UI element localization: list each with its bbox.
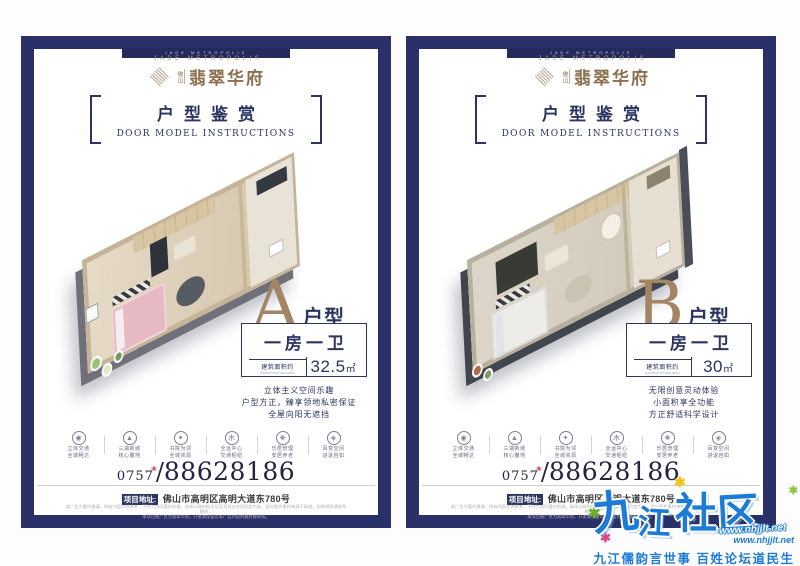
notch-text: JADE METROPOLIS (550, 50, 633, 55)
feature-traffic-icon: ◉ (457, 431, 471, 445)
round-rug (564, 270, 592, 308)
area-left: 建筑面积约 CONSTRUCTION AREA ABOUT (634, 359, 691, 375)
address-label: 项目地址: (507, 494, 544, 505)
desc-line: 户型方正，臻享领地私密保证 (224, 397, 374, 409)
disclaimer-line: 本广告为要约邀请，所有内容仅供参考，不作为合同要约依据，具体以政府批文及买卖双方… (65, 504, 347, 514)
section-title-cn: 户型鉴赏 (117, 100, 296, 125)
desc-line: 无限创意灵动体验 (609, 385, 759, 397)
watermark-char: 江 (637, 495, 672, 545)
desc-line: 小面积享全功能 (609, 397, 759, 409)
brand-block: JADE METROPOLIS 佛山 翡翠华府 (419, 56, 763, 89)
desk (545, 244, 569, 272)
feature-hub-icon: 木 (610, 431, 624, 445)
plant (472, 361, 483, 380)
feature-item: ◉立体交通全城畅达 (54, 431, 104, 459)
plant (101, 361, 112, 380)
unit-description: 无限创意灵动体验 小面积享全功能 方正舒适科学设计 (609, 385, 759, 421)
area-value: 30㎡ (691, 357, 744, 377)
section-title-cn: 户型鉴赏 (502, 100, 681, 125)
area-value: 32.5㎡ (306, 357, 359, 377)
brand-logo-diamond-icon (532, 65, 556, 89)
phone-main: 88628186 (164, 457, 295, 486)
poster-a-inner: JADE METROPOLIS JADE METROPOLIS 佛山 翡翠华府 (34, 49, 378, 515)
plant (483, 366, 493, 383)
desc-line: 立体主义空间乐趣 (224, 385, 374, 397)
area-unit: ㎡ (346, 364, 356, 375)
feature-school-icon: ✦ (559, 431, 573, 445)
feature-item: ❋乐居管理安居养老 (258, 431, 308, 459)
poster-a: JADE METROPOLIS JADE METROPOLIS 佛山 翡翠华府 (21, 36, 391, 528)
brand-row: 佛山 翡翠华府 (419, 64, 763, 89)
feature-item: ❋乐居管理安居养老 (643, 431, 693, 459)
desc-line: 全屋向阳无遮挡 (224, 409, 374, 421)
pillow (115, 308, 125, 351)
address-label: 项目地址: (122, 494, 159, 505)
brand-name-en: JADE METROPOLIS (34, 56, 378, 62)
disclaimer-line: 本项目推广名为翡翠华府，开发商保留对本广告内容的最终解释权。 (65, 515, 347, 520)
features-row: ◉立体交通全城畅达 ▲三湖新城核心腹地 ✦书院为邻全城资源 木全运中心交通枢纽 … (419, 431, 763, 459)
phone-number: 0757❀/88628186 (34, 457, 378, 486)
area-number: 32.5 (311, 357, 346, 376)
brand-city: 佛山 (175, 69, 185, 84)
washing-machine (85, 303, 98, 325)
tv-wall (495, 242, 538, 296)
watermark-char: 九 (589, 474, 642, 544)
feature-item: ✦书院为邻全城资源 (541, 431, 591, 459)
tv-cabinet (150, 236, 169, 277)
feature-item: ▲三湖新城核心腹地 (105, 431, 155, 459)
poster-b-inner: JADE METROPOLIS JADE METROPOLIS 佛山 翡翠华府 (419, 49, 763, 515)
feature-space-icon: ◈ (327, 431, 341, 445)
watermark-tagline: 九江儒韵言世事 百姓论坛道民生 (590, 548, 798, 566)
flower-icon: ❀ (536, 466, 542, 473)
feature-item: ▲三湖新城核心腹地 (490, 431, 540, 459)
desc-line: 方正舒适科学设计 (609, 409, 759, 421)
area-row: 建筑面积约 CONSTRUCTION AREA ABOUT 30㎡ (634, 357, 744, 377)
divider (37, 485, 375, 486)
area-row: 建筑面积约 CONSTRUCTION AREA ABOUT 32.5㎡ (249, 357, 359, 377)
feature-item: 木全运中心交通枢纽 (207, 431, 257, 459)
features-row: ◉立体交通全城畅达 ▲三湖新城核心腹地 ✦书院为邻全城资源 木全运中心交通枢纽 … (34, 431, 378, 459)
poster-b: JADE METROPOLIS JADE METROPOLIS 佛山 翡翠华府 (406, 36, 776, 528)
round-dining-table (599, 207, 623, 246)
dining-table (174, 235, 196, 261)
brand-block: JADE METROPOLIS 佛山 翡翠华府 (34, 56, 378, 89)
page: JADE METROPOLIS JADE METROPOLIS 佛山 翡翠华府 (0, 0, 800, 566)
notch-text: JADE METROPOLIS (165, 50, 248, 55)
unit-description: 立体主义空间乐趣 户型方正，臻享领地私密保证 全屋向阳无遮挡 (224, 385, 374, 421)
brand-name-cn: 翡翠华府 (574, 64, 650, 89)
feature-item: ◉立体交通全城畅达 (439, 431, 489, 459)
phone-prefix: 0757 (502, 469, 539, 484)
feature-space-icon: ◈ (712, 431, 726, 445)
forum-watermark: ✱ ✱ ✱ ✱ 九江社区 www.nhjjlt.net www.nhjjlt.n… (590, 480, 798, 564)
round-rug (176, 271, 206, 312)
pillow (495, 313, 505, 356)
area-box: 一房一卫 建筑面积约 CONSTRUCTION AREA ABOUT 30㎡ (626, 323, 752, 377)
area-label: 建筑面积约 (634, 362, 691, 371)
feature-item: ✦书院为邻全城资源 (156, 431, 206, 459)
brand-name-en: JADE METROPOLIS (419, 56, 763, 62)
address-value: 佛山市高明区高明大道东780号 (163, 494, 291, 504)
feature-lakes-icon: ▲ (123, 431, 137, 445)
layout-text: 一房一卫 (634, 329, 744, 354)
feature-school-icon: ✦ (174, 431, 188, 445)
brand-row: 佛山 翡翠华府 (34, 64, 378, 89)
feature-item: ◈百变空间进退自如 (694, 431, 744, 459)
watermark-char: 社 (675, 480, 717, 541)
feature-item: ◈百变空间进退自如 (309, 431, 359, 459)
brand-logo-diamond-icon (147, 65, 171, 89)
flower-icon: ❀ (151, 466, 157, 473)
area-unit: ㎡ (723, 364, 733, 375)
watermark-url: www.nhjjlt.net (733, 535, 794, 545)
phone-slash: / (156, 458, 164, 486)
brand-name-cn: 翡翠华府 (189, 64, 265, 89)
brand-city: 佛山 (560, 69, 570, 84)
feature-service-icon: ❋ (661, 431, 675, 445)
area-sublabel: CONSTRUCTION AREA ABOUT (255, 371, 301, 374)
phone-slash: / (541, 458, 549, 486)
area-number: 30 (703, 357, 723, 376)
area-left: 建筑面积约 CONSTRUCTION AREA ABOUT (249, 359, 306, 375)
feature-hub-icon: 木 (225, 431, 239, 445)
disclaimer: 本广告为要约邀请，所有内容仅供参考，不作为合同要约依据，具体以政府批文及买卖双方… (65, 504, 347, 519)
star-icon: ✱ (789, 484, 798, 497)
area-sublabel: CONSTRUCTION AREA ABOUT (640, 371, 686, 374)
feature-lakes-icon: ▲ (508, 431, 522, 445)
area-box: 一房一卫 建筑面积约 CONSTRUCTION AREA ABOUT 32.5㎡ (241, 323, 367, 377)
feature-service-icon: ❋ (276, 431, 290, 445)
layout-text: 一房一卫 (249, 329, 359, 354)
feature-traffic-icon: ◉ (72, 431, 86, 445)
feature-item: 木全运中心交通枢纽 (592, 431, 642, 459)
phone-prefix: 0757 (117, 469, 154, 484)
plant (90, 353, 102, 373)
area-label: 建筑面积约 (249, 362, 306, 371)
